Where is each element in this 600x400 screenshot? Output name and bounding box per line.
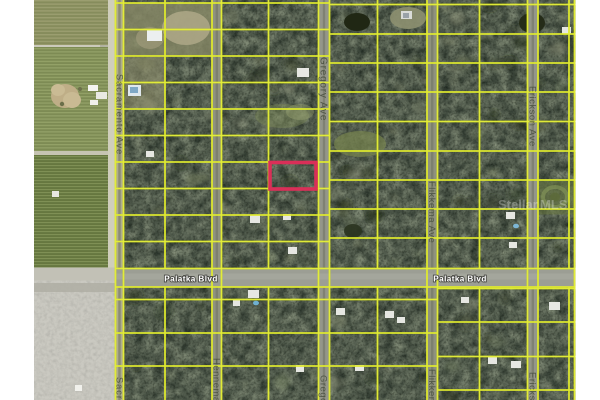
svg-text:Hennemann Av: Hennemann Av bbox=[211, 358, 222, 400]
svg-text:Palatka Blvd: Palatka Blvd bbox=[164, 275, 218, 284]
svg-text:Erickson Ave: Erickson Ave bbox=[527, 372, 538, 400]
svg-text:Flikkema Ave: Flikkema Ave bbox=[426, 181, 437, 243]
svg-text:Erickson Ave: Erickson Ave bbox=[527, 86, 538, 147]
svg-text:Flikkema Ave: Flikkema Ave bbox=[426, 369, 437, 400]
svg-text:Gregory Ave: Gregory Ave bbox=[318, 375, 329, 400]
svg-text:Sacramento Ave: Sacramento Ave bbox=[114, 74, 124, 155]
svg-text:Palatka Blvd: Palatka Blvd bbox=[433, 275, 487, 284]
svg-text:Sacramento Ave: Sacramento Ave bbox=[114, 377, 124, 400]
svg-text:MLS: MLS bbox=[540, 197, 568, 212]
svg-text:Gregory Ave: Gregory Ave bbox=[318, 57, 329, 121]
svg-text:Stellar: Stellar bbox=[498, 197, 538, 212]
